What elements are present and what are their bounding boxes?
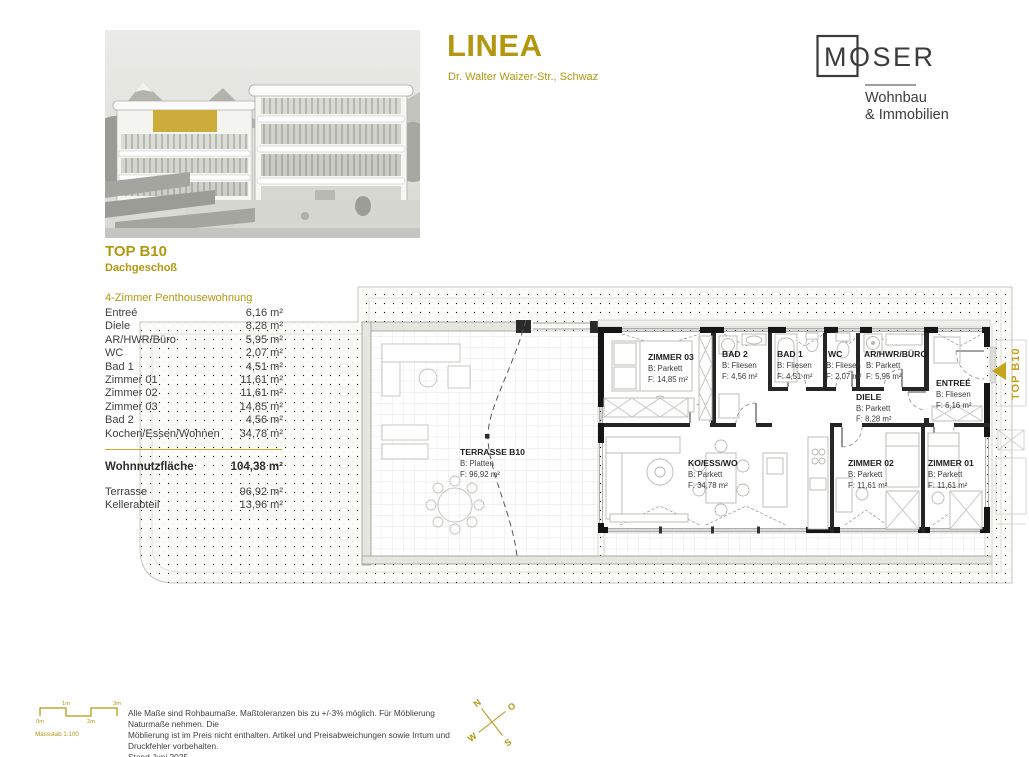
svg-text:B: Parkett: B: Parkett [688, 470, 723, 479]
svg-text:B: Parkett: B: Parkett [928, 470, 963, 479]
svg-text:BAD 2: BAD 2 [722, 349, 748, 359]
room-label-entree: ENTREÉ B: Fliesen F: 6,16 m² [936, 378, 972, 410]
brand-line2: & Immobilien [865, 107, 949, 123]
svg-text:B: Fliesen: B: Fliesen [826, 361, 861, 370]
unit-type: 4-Zimmer Penthousewohnung [105, 292, 252, 304]
roof-post-marker [485, 434, 490, 439]
svg-text:3m: 3m [113, 701, 121, 707]
svg-text:B: Platten: B: Platten [460, 459, 494, 468]
table-row: Diele8,28 m² [105, 320, 283, 333]
svg-text:B: Parkett: B: Parkett [848, 470, 883, 479]
svg-text:ENTREÉ: ENTREÉ [936, 378, 971, 388]
svg-text:TERRASSE B10: TERRASSE B10 [460, 447, 525, 457]
svg-text:F: 96,92 m²: F: 96,92 m² [460, 470, 500, 479]
scale-bar: 0m 1m 2m 3m Massstab 1:100 [35, 701, 121, 738]
svg-text:F: 11,61 m²: F: 11,61 m² [848, 481, 888, 490]
svg-text:0m: 0m [36, 719, 44, 725]
svg-text:F: 14,85 m²: F: 14,85 m² [648, 375, 688, 384]
photo-building-right-block [249, 85, 413, 218]
building-photo [105, 30, 420, 238]
disclaimer-line: Stand Juni 2025 [128, 752, 468, 757]
svg-text:1m: 1m [62, 701, 70, 707]
svg-text:Massstab 1:100: Massstab 1:100 [35, 731, 79, 738]
brochure-page: ZIMMER 03 B: Parkett F: 14,85 m² BAD 2 B… [0, 0, 1029, 757]
svg-text:B: Parkett: B: Parkett [866, 361, 901, 370]
building-rendering [105, 30, 420, 238]
svg-text:KO/ESS/WO: KO/ESS/WO [688, 458, 738, 468]
table-row: Bad 14,51 m² [105, 361, 283, 374]
svg-text:F: 5,95 m²: F: 5,95 m² [866, 372, 902, 381]
svg-text:BAD 1: BAD 1 [777, 349, 803, 359]
table-row: Zimmer 0211,61 m² [105, 387, 283, 400]
svg-text:F: 11,61 m²: F: 11,61 m² [928, 481, 968, 490]
svg-text:ZIMMER 03: ZIMMER 03 [648, 352, 694, 362]
window-sill-band [598, 320, 990, 327]
disclaimer-line: Alle Maße sind Rohbaumaße. Maßtoleranzen… [128, 708, 468, 730]
svg-text:F: 4,56 m²: F: 4,56 m² [722, 372, 758, 381]
brand-line1: Wohnbau [865, 90, 927, 106]
svg-text:TOP B10: TOP B10 [1010, 348, 1022, 400]
table-row: Kochen/Essen/Wohnen34,78 m² [105, 428, 283, 441]
svg-text:F: 4,51 m²: F: 4,51 m² [777, 372, 813, 381]
svg-text:B: Fliesen: B: Fliesen [722, 361, 757, 370]
svg-text:F: 8,28 m²: F: 8,28 m² [856, 415, 892, 424]
svg-text:WC: WC [828, 349, 842, 359]
disclaimer: Alle Maße sind Rohbaumaße. Maßtoleranzen… [128, 708, 468, 757]
brand-name: MOSER [824, 42, 936, 72]
svg-text:B: Fliesen: B: Fliesen [777, 361, 812, 370]
svg-text:O: O [506, 701, 518, 713]
svg-text:F: 34,78 m²: F: 34,78 m² [688, 481, 728, 490]
svg-text:DIELE: DIELE [856, 392, 882, 402]
svg-text:S: S [503, 737, 514, 749]
table-row: Zimmer 0314,85 m² [105, 401, 283, 414]
table-row: WC2,07 m² [105, 347, 283, 360]
svg-text:2m: 2m [87, 719, 95, 725]
table-row: AR/HWR/Büro5,95 m² [105, 334, 283, 347]
room-area-table: Entreé6,16 m² Diele8,28 m² AR/HWR/Büro5,… [105, 307, 283, 513]
table-row: Terrasse96,92 m² [105, 486, 283, 499]
svg-text:N: N [472, 697, 483, 709]
extras-rows: Terrasse96,92 m² Kellerabteil13,96 m² [105, 486, 283, 513]
svg-text:B: Parkett: B: Parkett [648, 364, 683, 373]
svg-text:F: 6,16 m²: F: 6,16 m² [936, 401, 972, 410]
svg-text:B: Fliesen: B: Fliesen [936, 390, 971, 399]
table-row: Kellerabteil13,96 m² [105, 499, 283, 512]
svg-text:B: Parkett: B: Parkett [856, 404, 891, 413]
total-row: Wohnnutzfläche 104,38 m² [105, 460, 283, 474]
svg-text:ZIMMER 02: ZIMMER 02 [848, 458, 894, 468]
gold-divider [105, 449, 282, 450]
table-row: Entreé6,16 m² [105, 307, 283, 320]
table-row: Bad 24,56 m² [105, 414, 283, 427]
disclaimer-line: Möblierung ist im Preis nicht enthalten.… [128, 730, 468, 752]
svg-text:AR/HWR/BÜRO: AR/HWR/BÜRO [864, 349, 927, 359]
table-row: Zimmer 0111,61 m² [105, 374, 283, 387]
brand-logo: MOSER Wohnbau & Immobilien [816, 33, 1016, 130]
svg-text:ZIMMER 01: ZIMMER 01 [928, 458, 974, 468]
svg-text:F: 2,07 m²: F: 2,07 m² [826, 372, 862, 381]
